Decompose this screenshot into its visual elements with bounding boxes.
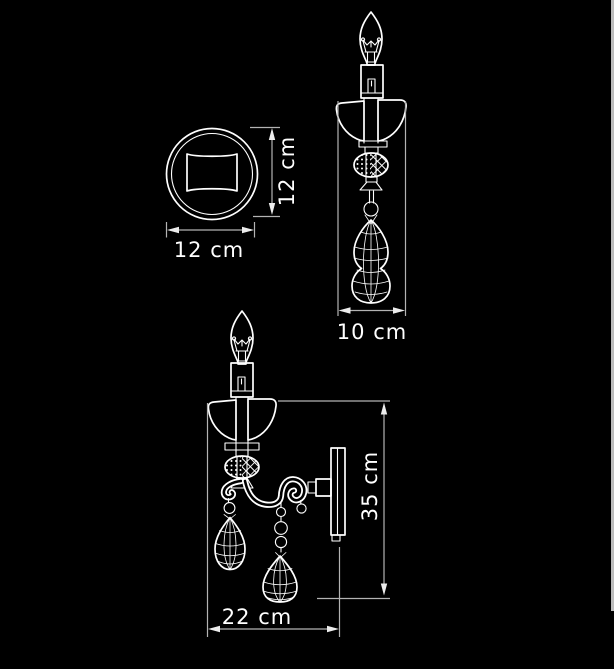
candle-bulb-side [360, 12, 382, 65]
crystal-drop-side [352, 220, 390, 303]
dim-backplate-width: 12 cm [167, 222, 255, 262]
view-backplate-front: 12 cm 12 cm [167, 128, 300, 263]
bobeche-side [336, 98, 406, 143]
backplate-width-label: 12 cm [174, 238, 244, 262]
view-side: 10 cm [336, 12, 407, 344]
scroll-arm [224, 479, 306, 513]
stem-beads-side [354, 141, 388, 224]
side-depth-label: 10 cm [337, 320, 407, 344]
view-front: 35 cm 22 cm [208, 311, 391, 637]
candle-sleeve-side [361, 65, 383, 98]
front-height-label: 35 cm [358, 451, 382, 521]
backplate-height-label: 12 cm [275, 136, 299, 206]
backplate-outline [167, 129, 258, 220]
candle-sleeve-front [231, 363, 253, 397]
drawing-canvas: 12 cm 12 cm [0, 0, 614, 669]
candle-bulb-front [231, 311, 253, 364]
center-crystal-pendant [263, 503, 297, 602]
sconce-technical-drawing: 12 cm 12 cm [0, 0, 614, 669]
front-width-label: 22 cm [222, 605, 292, 629]
bobeche-front [208, 397, 276, 452]
wall-mount [308, 448, 345, 541]
left-crystal-pendant [215, 499, 245, 570]
